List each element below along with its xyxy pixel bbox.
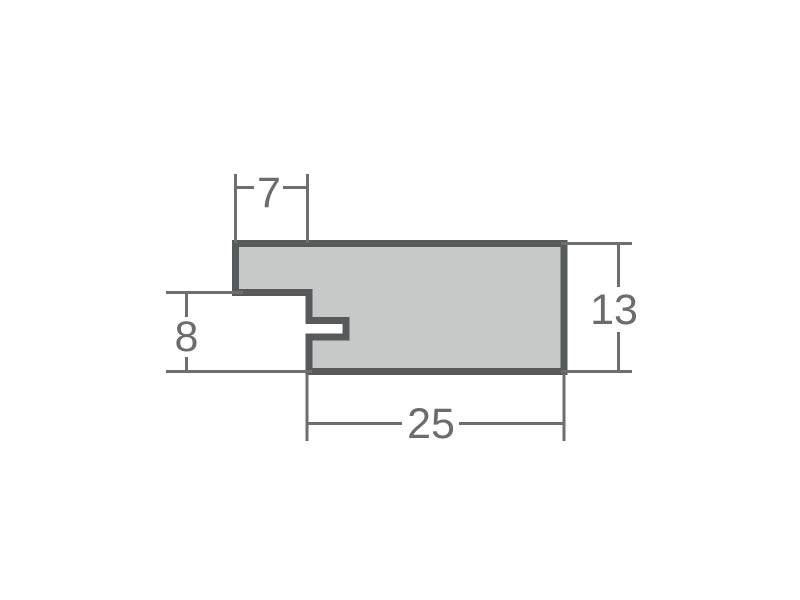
profile-shape <box>236 244 565 372</box>
dimension-right-height: 13 <box>561 244 638 372</box>
dimension-bottom-width: 25 <box>307 374 564 448</box>
dimension-left-height: 8 <box>166 293 312 372</box>
dimension-top-width: 7 <box>234 169 309 243</box>
dimension-label-top-width: 7 <box>257 169 281 217</box>
cross-section-diagram: 7 8 13 25 <box>0 0 800 600</box>
dimension-label-left-height: 8 <box>175 313 199 361</box>
dimension-label-bottom-width: 25 <box>407 400 455 448</box>
diagram-canvas: 7 8 13 25 <box>0 0 800 600</box>
dimension-label-right-height: 13 <box>590 286 638 334</box>
